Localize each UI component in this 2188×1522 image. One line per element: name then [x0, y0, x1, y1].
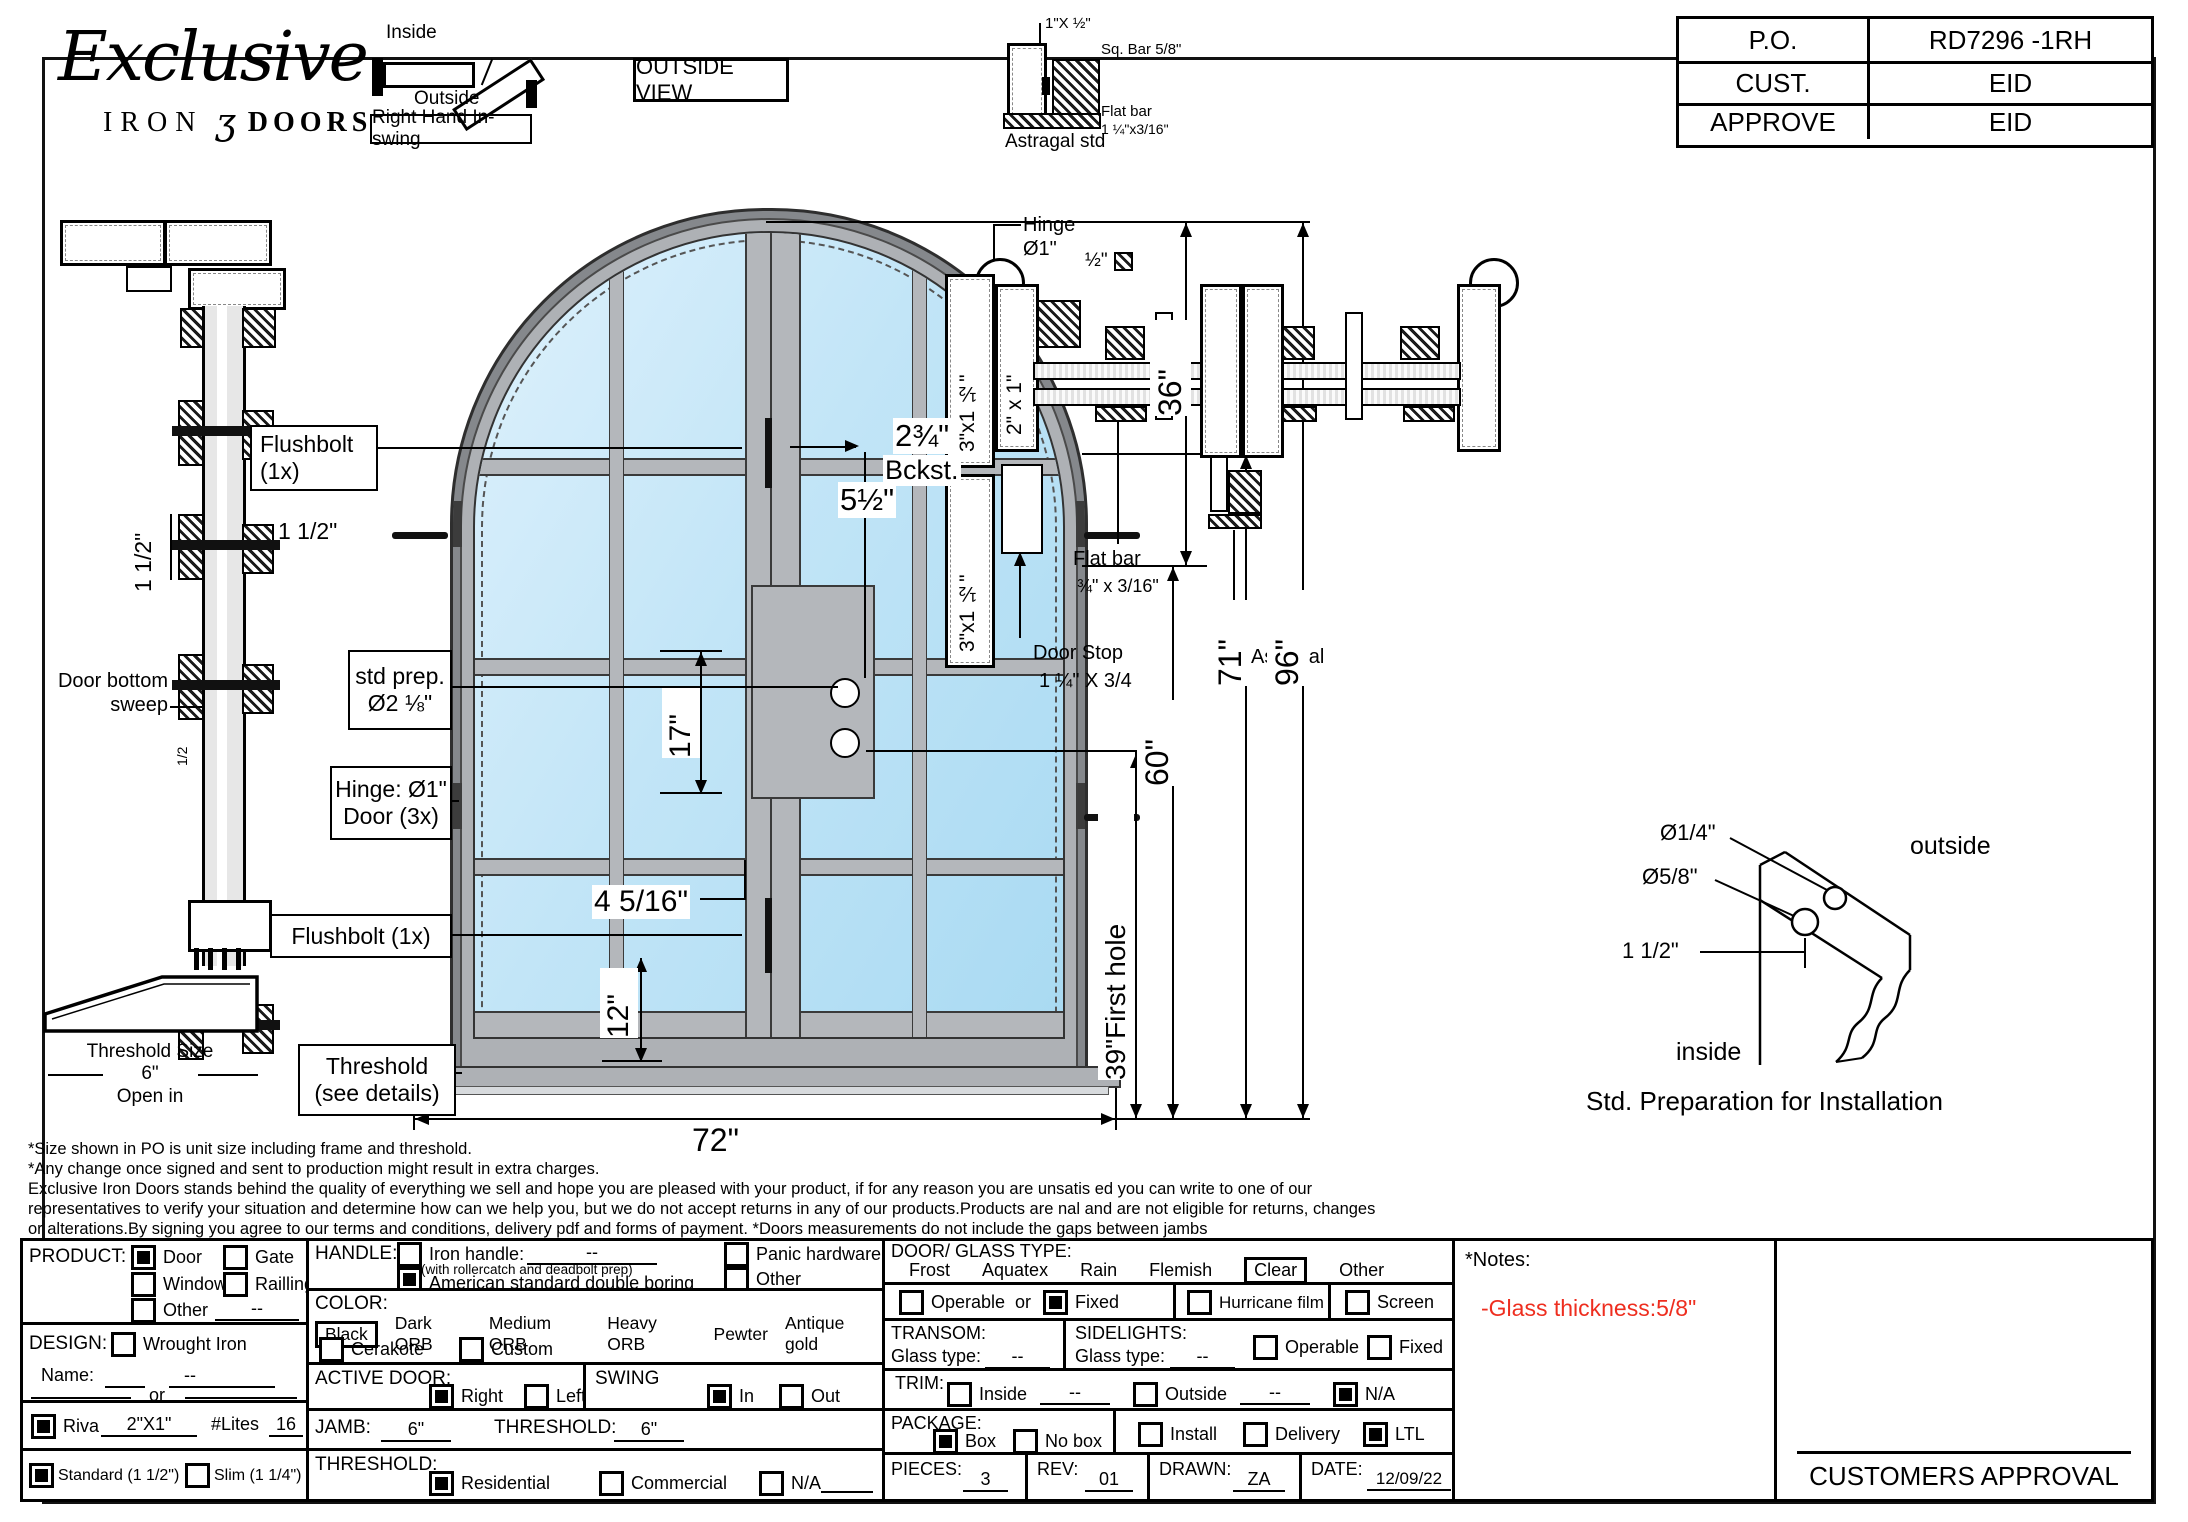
form-color-box: COLOR: Black Dark ORB Medium ORB Heavy O… [306, 1288, 888, 1368]
approval-label: CUSTOMERS APPROVAL [1777, 1461, 2151, 1492]
plan-hinge-label-1: Hinge [1023, 214, 1075, 237]
sweep-fin [222, 948, 227, 970]
glass-hurricane-label: Hurricane film [1219, 1293, 1324, 1313]
hinge-tab [453, 783, 462, 829]
callout-text: Threshold [326, 1053, 428, 1080]
jamb-head-tube [188, 268, 286, 310]
install-dia-five-eighths: Ø5/8" [1642, 864, 1698, 890]
standard-checkbox[interactable] [29, 1463, 54, 1488]
color-custom-label: Custom [491, 1339, 553, 1360]
sweep-fin [208, 948, 213, 970]
form-riva-box: Riva 2"X1" #Lites 16 [20, 1400, 312, 1454]
handle-iron-checkbox[interactable] [397, 1242, 422, 1267]
hinge-tab [453, 501, 462, 547]
active-left-label: Left [556, 1386, 586, 1407]
date-label: DATE: [1311, 1459, 1363, 1480]
plan-meeting-stile [1242, 284, 1284, 458]
callout-text: Door (3x) [343, 803, 439, 830]
logo-script: Exclusive [58, 18, 367, 97]
threshold-bar-lower [423, 1086, 1109, 1095]
swing-jamb-right [526, 80, 537, 108]
form-product-box: PRODUCT: Door Gate Window Railling Other… [20, 1238, 312, 1328]
plan-hinge-label-2: Ø1" [1023, 238, 1057, 261]
form-active-box: ACTIVE DOOR: Right Left SWING In Out [306, 1362, 888, 1414]
po-label: P.O. [1679, 19, 1870, 64]
glass-operable-label: Operable [931, 1292, 1005, 1313]
astragal-flatbar-label1: Flat bar [1101, 103, 1152, 120]
astragal-dim: 1"X ½" [1045, 15, 1091, 32]
astragal-caption: Astragal std [1005, 131, 1105, 153]
pieces-label: PIECES: [891, 1459, 962, 1480]
swing-diagram: Inside Outside Right Hand In-swing [368, 22, 538, 144]
dim-4-5-16: 4 5/16" [592, 885, 690, 919]
jamb-hinge2-pin [172, 540, 280, 550]
astragal-flatbar-label2: 1 ¼"x3/16" [1101, 121, 1169, 137]
glass-screen-checkbox[interactable] [1345, 1290, 1370, 1315]
signature-line[interactable] [1797, 1451, 2131, 1454]
sweep-fin [194, 948, 199, 970]
pieces-value[interactable]: 3 [963, 1469, 1008, 1492]
astragal-tab [1042, 77, 1050, 95]
install-detail: Ø1/4" Ø5/8" 1 1/2" outside inside Std. P… [1580, 780, 2140, 1125]
dim-72: 72" [690, 1122, 741, 1159]
threshold-caption-1: Threshold Size [58, 1041, 242, 1063]
form-design-box: DESIGN: Wrought Iron Name: -- or [20, 1322, 312, 1406]
callout-threshold: Threshold (see details) [298, 1044, 456, 1116]
square-bar-icon [1114, 252, 1133, 271]
callout-text: Ø2 ⅛" [368, 690, 432, 717]
package-nobox-checkbox[interactable] [1013, 1429, 1038, 1454]
color-heavy-orb-option[interactable]: Heavy ORB [607, 1313, 696, 1355]
callout-text: Hinge: Ø1" [335, 776, 447, 803]
threshold-bar [413, 1066, 1121, 1088]
astragal-std-detail: 1"X ½" Sq. Bar 5/8" Flat bar 1 ¼"x3/16" … [995, 15, 1185, 155]
plan-frame-tube-bottom: 3"x1 ½" [945, 474, 995, 668]
bore-hole-top [830, 678, 860, 708]
disclaimer-line: Exclusive Iron Doors stands behind the q… [28, 1179, 1588, 1199]
transom-glass-label: Glass type: [891, 1346, 981, 1367]
package-install-checkbox[interactable] [1138, 1422, 1163, 1447]
door-bottom-rail [188, 900, 272, 952]
form-notes-box: *Notes: -Glass thickness:5/8" [1452, 1238, 1780, 1502]
jamb-section: 1 1/2" 1 1/2" Door bottom sweep 1/2 Thre… [40, 212, 340, 1127]
sweep-fin [236, 948, 241, 970]
color-antique-option[interactable]: Antique gold [785, 1313, 879, 1355]
dim-96: 96" [1267, 590, 1308, 686]
jamb-threshold-label: THRESHOLD: [494, 1417, 616, 1439]
trim-outside-checkbox[interactable] [1133, 1382, 1158, 1407]
handle-other-label: Other [756, 1269, 801, 1290]
plan-door-tube-label: 2" x 1" [1003, 295, 1027, 435]
dim-17: 17" [662, 686, 700, 758]
color-cerakote-label: Cerakote [351, 1339, 424, 1360]
product-railling-checkbox[interactable] [223, 1272, 248, 1297]
plan-frame-tube-top: 3"x1 ½" [945, 274, 995, 468]
sidelights-operable-checkbox[interactable] [1253, 1335, 1278, 1360]
swing-in-label: In [739, 1386, 754, 1407]
form-glass-box: DOOR/ GLASS TYPE: Frost Aquatex Rain Fle… [882, 1238, 1458, 1288]
sidelights-fixed-label: Fixed [1399, 1337, 1443, 1358]
jamb-header-tube-2 [164, 220, 272, 266]
disclaimer-line: representatives to verify your situation… [28, 1199, 1588, 1219]
handle-panic-label: Panic hardware [756, 1244, 881, 1265]
callout-text: (1x) [260, 458, 300, 485]
swing-out-checkbox[interactable] [779, 1384, 804, 1409]
glass-frost-option[interactable]: Frost [909, 1260, 950, 1281]
package-ltl-label: LTL [1395, 1424, 1425, 1445]
glass-operable-checkbox[interactable] [899, 1290, 924, 1315]
callout-flushbolt-bottom: Flushbolt (1x) [270, 914, 452, 958]
cust-label: CUST. [1679, 64, 1870, 106]
design-wrought-label: Wrought Iron [143, 1334, 247, 1355]
product-door-checkbox[interactable] [131, 1245, 156, 1270]
product-other-value[interactable]: -- [215, 1298, 299, 1321]
dim-36: 36" [1150, 320, 1191, 416]
lites-label: #Lites [211, 1414, 259, 1435]
install-outside-label: outside [1910, 832, 1991, 861]
callout-flushbolt-top: Flushbolt (1x) [250, 425, 378, 491]
threshold-commercial-checkbox[interactable] [599, 1471, 624, 1496]
plan-sqbar-block [1037, 300, 1081, 348]
callout-text: Flushbolt (1x) [291, 923, 430, 950]
title-block: P.O. RD7296 -1RH CUST. EID APPROVE EID [1676, 16, 2154, 148]
trim-inside-checkbox[interactable] [947, 1382, 972, 1407]
disclaimer: *Size shown in PO is unit size including… [28, 1139, 1588, 1239]
swing-in-checkbox[interactable] [707, 1384, 732, 1409]
swing-arrow [481, 59, 493, 86]
plan-astragal-tube [1210, 456, 1228, 512]
plan-stop-block [1105, 326, 1145, 360]
plan-stop-strip [1403, 406, 1455, 422]
trim-na-label: N/A [1365, 1384, 1395, 1405]
handle-label: HANDLE: [315, 1243, 397, 1265]
design-name-value[interactable]: -- [105, 1365, 275, 1388]
dim-5-5: 5½" [838, 482, 896, 518]
standard-label: Standard (1 1/2") [58, 1467, 179, 1485]
callout-text: (see details) [314, 1080, 439, 1107]
plan-doorstop-label-2: 1 ¼" X 3/4 [1039, 670, 1132, 693]
plan-muntin [1345, 312, 1363, 420]
form-meta-box: PIECES: 3 REV: 01 DRAWN: ZA DATE: 12/09/… [882, 1452, 1458, 1502]
glass-other-option[interactable]: Other [1339, 1260, 1384, 1281]
package-nobox-label: No box [1045, 1431, 1102, 1452]
color-pewter-option[interactable]: Pewter [714, 1324, 768, 1345]
jamb-label: JAMB: [315, 1417, 371, 1439]
sidelights-label: SIDELIGHTS: [1075, 1323, 1187, 1344]
package-box-checkbox[interactable] [933, 1429, 958, 1454]
riva-checkbox[interactable] [31, 1414, 56, 1439]
trim-inside-value[interactable]: -- [1040, 1382, 1110, 1405]
astragal-sqbar-label: Sq. Bar 5/8" [1101, 41, 1181, 58]
logo-doors: DOORS [248, 107, 373, 139]
package-delivery-checkbox[interactable] [1243, 1422, 1268, 1447]
glass-screen-label: Screen [1377, 1292, 1434, 1313]
jamb-top-block-l [180, 308, 204, 348]
plan-stop-block [1400, 326, 1440, 360]
notes-glass-thickness: -Glass thickness:5/8" [1481, 1295, 1696, 1322]
product-gate-label: Gate [255, 1247, 294, 1268]
glass-flemish-option[interactable]: Flemish [1149, 1260, 1212, 1281]
approve-label: APPROVE [1679, 106, 1870, 139]
form-transom-box: TRANSOM: Glass type: -- SIDELIGHTS: Glas… [882, 1318, 1458, 1374]
package-install-label: Install [1170, 1424, 1217, 1445]
form-package-box: PACKAGE: Box No box Install Delivery LTL [882, 1408, 1458, 1458]
form-handle-box: HANDLE: Iron handle: -- (with rollercatc… [306, 1238, 888, 1294]
transom-label: TRANSOM: [891, 1323, 986, 1344]
glass-hurricane-checkbox[interactable] [1187, 1290, 1212, 1315]
swing-label: SWING [595, 1368, 659, 1390]
logo-ornament-icon: ʒ [215, 102, 235, 143]
glass-or-label: or [1015, 1292, 1031, 1313]
dim-60: 60" [1137, 700, 1178, 786]
plan-meeting-stile [1200, 284, 1242, 458]
disclaimer-line: or alterations.By signing you agree to o… [28, 1219, 1588, 1239]
threshold-residential-label: Residential [461, 1473, 550, 1494]
jamb-strip [202, 306, 246, 966]
transom-glass-value[interactable]: -- [985, 1346, 1050, 1369]
date-value[interactable]: 12/09/22 [1367, 1469, 1451, 1491]
active-left-checkbox[interactable] [524, 1384, 549, 1409]
swing-tag: Right Hand In-swing [370, 114, 532, 144]
sweep-label-1: Door bottom [40, 670, 168, 693]
plan-flatbar-label-2: ¾" x 3/16" [1077, 576, 1159, 597]
trim-inside-label: Inside [979, 1384, 1027, 1405]
color-custom-checkbox[interactable] [459, 1337, 484, 1362]
muntin-right [912, 233, 927, 1037]
package-delivery-label: Delivery [1275, 1424, 1340, 1445]
logo-iron: IRON [103, 107, 203, 139]
threshold-caption-3: Open in [58, 1086, 242, 1108]
product-window-checkbox[interactable] [131, 1272, 156, 1297]
product-gate-checkbox[interactable] [223, 1245, 248, 1270]
sidelights-fixed-checkbox[interactable] [1367, 1335, 1392, 1360]
glass-clear-option[interactable]: Clear [1244, 1257, 1307, 1284]
trim-outside-value[interactable]: -- [1240, 1382, 1310, 1405]
active-right-checkbox[interactable] [429, 1384, 454, 1409]
product-other-label: Other [163, 1300, 208, 1321]
riva-value[interactable]: 2"X1" [101, 1414, 197, 1437]
hinge-tab [1076, 783, 1085, 829]
notes-title: *Notes: [1465, 1249, 1531, 1272]
disclaimer-line: *Any change once signed and sent to prod… [28, 1159, 1588, 1179]
design-label: DESIGN: [29, 1333, 107, 1355]
product-door-label: Door [163, 1247, 202, 1268]
plan-doorstop-label-1: Door Stop [1033, 642, 1123, 665]
color-cerakote-checkbox[interactable] [319, 1337, 344, 1362]
plan-frame-tube-label: 3"x1 ½" [956, 487, 980, 652]
jamb-hinge3-pin [172, 680, 280, 690]
plan-halfsq-text: ½" [1085, 250, 1108, 272]
handle-panic-checkbox[interactable] [724, 1242, 749, 1267]
bore-hole-bottom [830, 728, 860, 758]
callout-text: std prep. [355, 663, 445, 690]
dim-12: 12" [600, 968, 638, 1038]
sidelights-glass-value[interactable]: -- [1170, 1346, 1235, 1369]
dim-backset: 2¾" [893, 418, 951, 454]
jamb-clip [126, 266, 172, 292]
hinge-screw [392, 532, 448, 539]
threshold-wedge [42, 972, 262, 1036]
drawn-value[interactable]: ZA [1233, 1469, 1285, 1492]
glass-fixed-checkbox[interactable] [1043, 1290, 1068, 1315]
package-ltl-checkbox[interactable] [1363, 1422, 1388, 1447]
package-box-label: Box [965, 1431, 996, 1452]
jamb-half-dim: 1/2 [174, 732, 190, 766]
design-wrought-checkbox[interactable] [111, 1332, 136, 1357]
plan-astragal-sqbar [1228, 470, 1262, 514]
slim-checkbox[interactable] [185, 1463, 210, 1488]
view-title: OUTSIDE VIEW [633, 58, 789, 102]
astragal-square-bar [1052, 59, 1100, 117]
swing-jamb-left [372, 58, 383, 96]
spec-sheet: Exclusive IRON ʒ DOORS Inside Outside Ri… [0, 0, 2188, 1522]
install-dia-quarter: Ø1/4" [1660, 820, 1716, 846]
flushbolt-rod-bottom [765, 898, 772, 973]
threshold-na-label: N/A [791, 1473, 821, 1494]
threshold-na-checkbox[interactable] [759, 1471, 784, 1496]
jamb-header-tube-1 [60, 220, 166, 266]
threshold-commercial-label: Commercial [631, 1473, 727, 1494]
plan-door-stop [1001, 464, 1043, 554]
trim-na-checkbox[interactable] [1333, 1382, 1358, 1407]
flushbolt-rod-top [765, 418, 772, 488]
callout-std-prep: std prep. Ø2 ⅛" [348, 650, 452, 730]
glass-aquatex-option[interactable]: Aquatex [982, 1260, 1048, 1281]
cust-value: EID [1870, 64, 2151, 106]
form-threshold-box: THRESHOLD: Residential Commercial N/A [306, 1448, 888, 1502]
sweep-label-2: sweep [40, 694, 168, 717]
swing-inside-label: Inside [386, 22, 437, 44]
form-approval-box: CUSTOMERS APPROVAL [1774, 1238, 2154, 1502]
sidelights-glass-label: Glass type: [1075, 1346, 1165, 1367]
disclaimer-line: *Size shown in PO is unit size including… [28, 1139, 1588, 1159]
plan-astragal-flat [1208, 514, 1262, 529]
po-value: RD7296 -1RH [1870, 19, 2151, 64]
plan-door-tube-right [1457, 284, 1501, 452]
install-dim: 1 1/2" [1622, 938, 1679, 964]
lites-value[interactable]: 16 [269, 1414, 303, 1437]
glass-rain-option[interactable]: Rain [1080, 1260, 1117, 1281]
logo: Exclusive IRON ʒ DOORS [58, 18, 378, 143]
product-window-label: Window [163, 1274, 227, 1295]
plan-stop-strip [1095, 406, 1147, 422]
glass-fixed-label: Fixed [1075, 1292, 1119, 1313]
jamb-dim-horizontal: 1 1/2" [278, 518, 337, 545]
form-standard-box: Standard (1 1/2") Slim (1 1/4") [20, 1448, 312, 1502]
install-inside-label: inside [1676, 1038, 1741, 1067]
product-other-checkbox[interactable] [131, 1298, 156, 1323]
jamb-dim-rotated: 1 1/2" [130, 502, 157, 592]
color-label: COLOR: [315, 1293, 388, 1315]
dim-71: 71" [1210, 600, 1251, 686]
install-caption: Std. Preparation for Installation [1586, 1086, 2131, 1117]
riva-label: Riva [63, 1416, 99, 1437]
drawn-label: DRAWN: [1159, 1459, 1231, 1480]
active-right-label: Right [461, 1386, 503, 1407]
plan-halfsq-label: ½" [1085, 250, 1133, 272]
product-label: PRODUCT: [29, 1246, 126, 1268]
plan-frame-tube-label: 3"x1 ½" [956, 287, 980, 452]
jamb-top-block-r [242, 308, 276, 348]
plan-flatbar-label-1: Flat bar [1073, 548, 1141, 571]
threshold-residential-checkbox[interactable] [429, 1471, 454, 1496]
sidelights-operable-label: Operable [1285, 1337, 1359, 1358]
callout-text: Flushbolt [260, 431, 353, 458]
slim-label: Slim (1 1/4") [214, 1467, 301, 1485]
jamb-value[interactable]: 6" [381, 1419, 451, 1442]
rev-label: REV: [1037, 1459, 1078, 1480]
rev-value[interactable]: 01 [1085, 1469, 1133, 1492]
dim-39-first-hole: 39"First hole [1098, 790, 1134, 1080]
callout-hinge: Hinge: Ø1" Door (3x) [330, 766, 452, 840]
threshold-label: THRESHOLD: [315, 1454, 437, 1476]
approve-value: EID [1870, 106, 2151, 139]
trim-label: TRIM: [895, 1373, 944, 1394]
astragal-flat-bar [1003, 113, 1101, 129]
jamb-threshold-value[interactable]: 6" [614, 1419, 684, 1442]
trim-outside-label: Outside [1165, 1384, 1227, 1405]
swing-door-closed [383, 62, 475, 88]
swing-out-label: Out [811, 1386, 840, 1407]
design-name-label: Name: [41, 1365, 94, 1386]
